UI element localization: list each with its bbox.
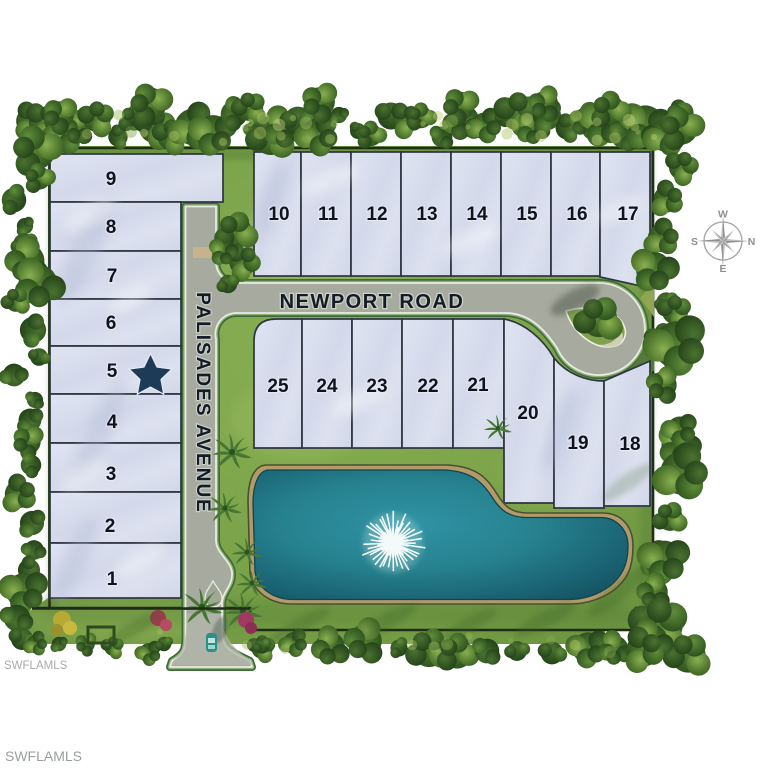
svg-text:19: 19 [567,433,588,454]
svg-text:8: 8 [106,217,117,238]
svg-text:2: 2 [105,516,116,537]
svg-text:S: S [691,236,698,248]
svg-text:20: 20 [517,403,538,424]
svg-text:14: 14 [466,204,488,225]
svg-text:NEWPORT ROAD: NEWPORT ROAD [280,291,465,313]
svg-text:16: 16 [566,204,587,225]
svg-text:E: E [719,263,726,275]
svg-text:12: 12 [366,204,387,225]
svg-text:SWFLAMLS: SWFLAMLS [4,660,68,672]
svg-text:5: 5 [107,361,118,382]
svg-text:10: 10 [268,204,289,225]
svg-text:4: 4 [107,412,118,433]
svg-text:SWFLAMLS: SWFLAMLS [5,748,82,764]
svg-text:11: 11 [318,204,339,225]
svg-text:N: N [748,236,756,248]
svg-text:23: 23 [366,376,387,397]
svg-text:15: 15 [516,204,538,225]
svg-text:W: W [718,209,728,221]
svg-text:1: 1 [107,569,118,590]
svg-text:17: 17 [617,204,638,225]
svg-text:3: 3 [106,464,117,485]
svg-text:PALISADES AVENUE: PALISADES AVENUE [192,292,213,514]
svg-text:22: 22 [417,376,438,397]
svg-text:25: 25 [267,376,289,397]
svg-text:9: 9 [106,169,117,190]
svg-text:6: 6 [106,313,117,334]
svg-text:7: 7 [107,266,118,287]
svg-text:13: 13 [416,204,437,225]
svg-text:21: 21 [467,375,489,396]
svg-text:24: 24 [316,376,338,397]
svg-text:18: 18 [619,434,640,455]
